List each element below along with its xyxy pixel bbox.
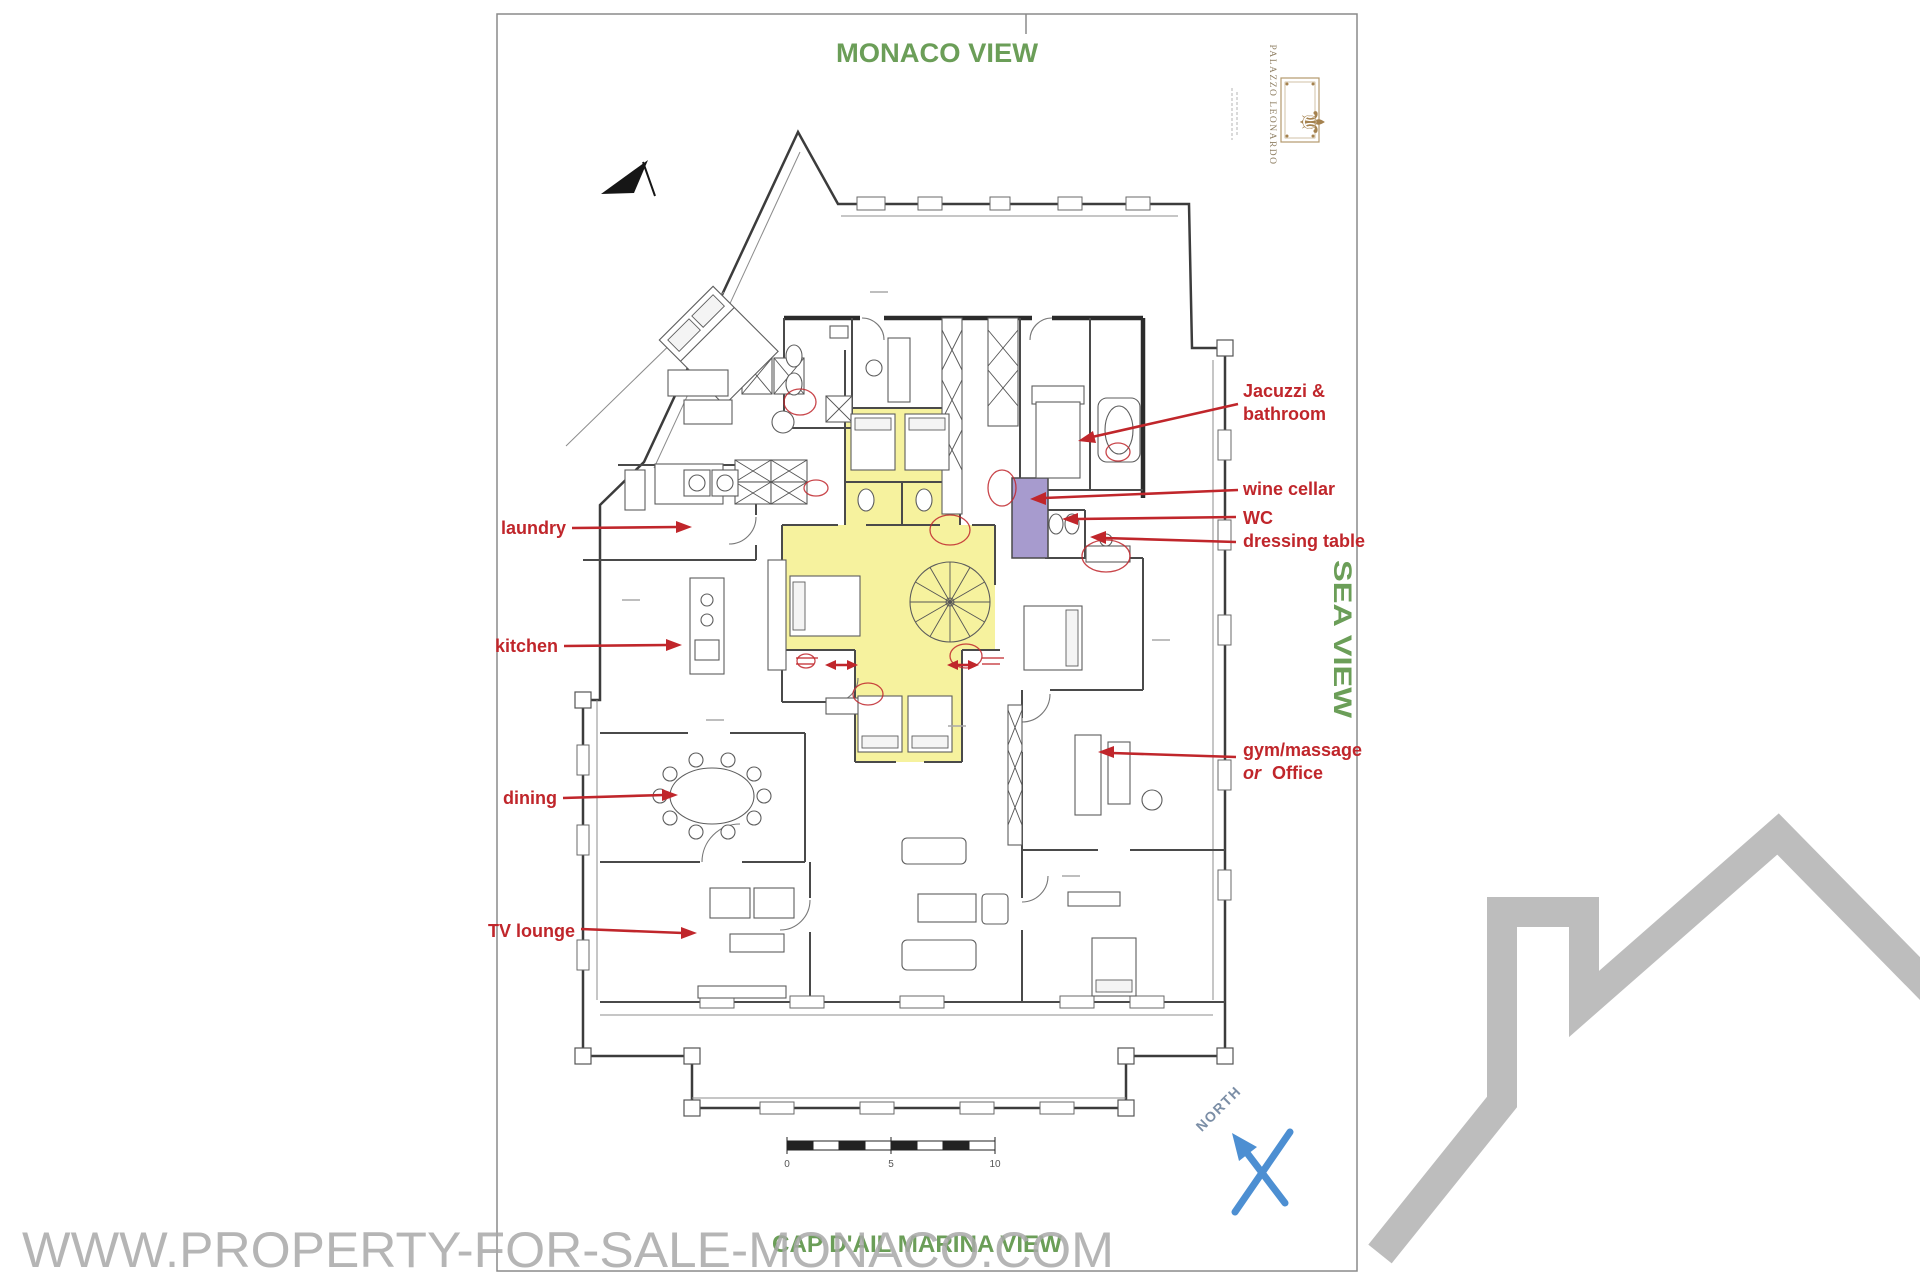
- monaco-view-label: MONACO VIEW: [836, 38, 1039, 68]
- watermark-text: WWW.PROPERTY-FOR-SALE-MONACO.COM: [22, 1222, 1114, 1278]
- gym-label-line2: orOffice: [1243, 763, 1323, 783]
- laundry-label: laundry: [501, 518, 566, 538]
- wc-label: WC: [1243, 508, 1273, 528]
- floorplan-svg: 0 5 10 laundry: [0, 0, 1920, 1280]
- tv-lounge-label: TV lounge: [488, 921, 575, 941]
- jacuzzi-label-line2: bathroom: [1243, 404, 1326, 424]
- gym-hatched-wall: [1008, 705, 1022, 845]
- kitchen-label: kitchen: [495, 636, 558, 656]
- bed-top-right: [1032, 386, 1084, 478]
- dining-label: dining: [503, 788, 557, 808]
- scale-end-label: 10: [989, 1159, 1001, 1170]
- suite-middle-bed: [790, 576, 860, 636]
- wine-cellar-room: [1012, 478, 1048, 558]
- scale-middle-label: 5: [888, 1159, 894, 1170]
- dressing-table-label: dressing table: [1243, 531, 1365, 551]
- jacuzzi-label-line1: Jacuzzi &: [1243, 381, 1325, 401]
- fleur-de-lis-icon: ⚜: [1291, 107, 1331, 137]
- spiral-staircase: [910, 562, 990, 642]
- sea-view-label: SEA VIEW: [1328, 560, 1356, 719]
- wine-cellar-label: wine cellar: [1242, 479, 1335, 499]
- house-roof-icon: [1380, 834, 1920, 1254]
- bed-mid-right: [1024, 606, 1082, 670]
- scale-start-label: 0: [784, 1159, 790, 1170]
- shower-xbox: [826, 396, 852, 422]
- floorplan-page: 0 5 10 laundry: [0, 0, 1920, 1280]
- gym-label-line1: gym/massage: [1243, 740, 1362, 760]
- logo-title: PALAZZO LEONARDO: [1267, 44, 1277, 165]
